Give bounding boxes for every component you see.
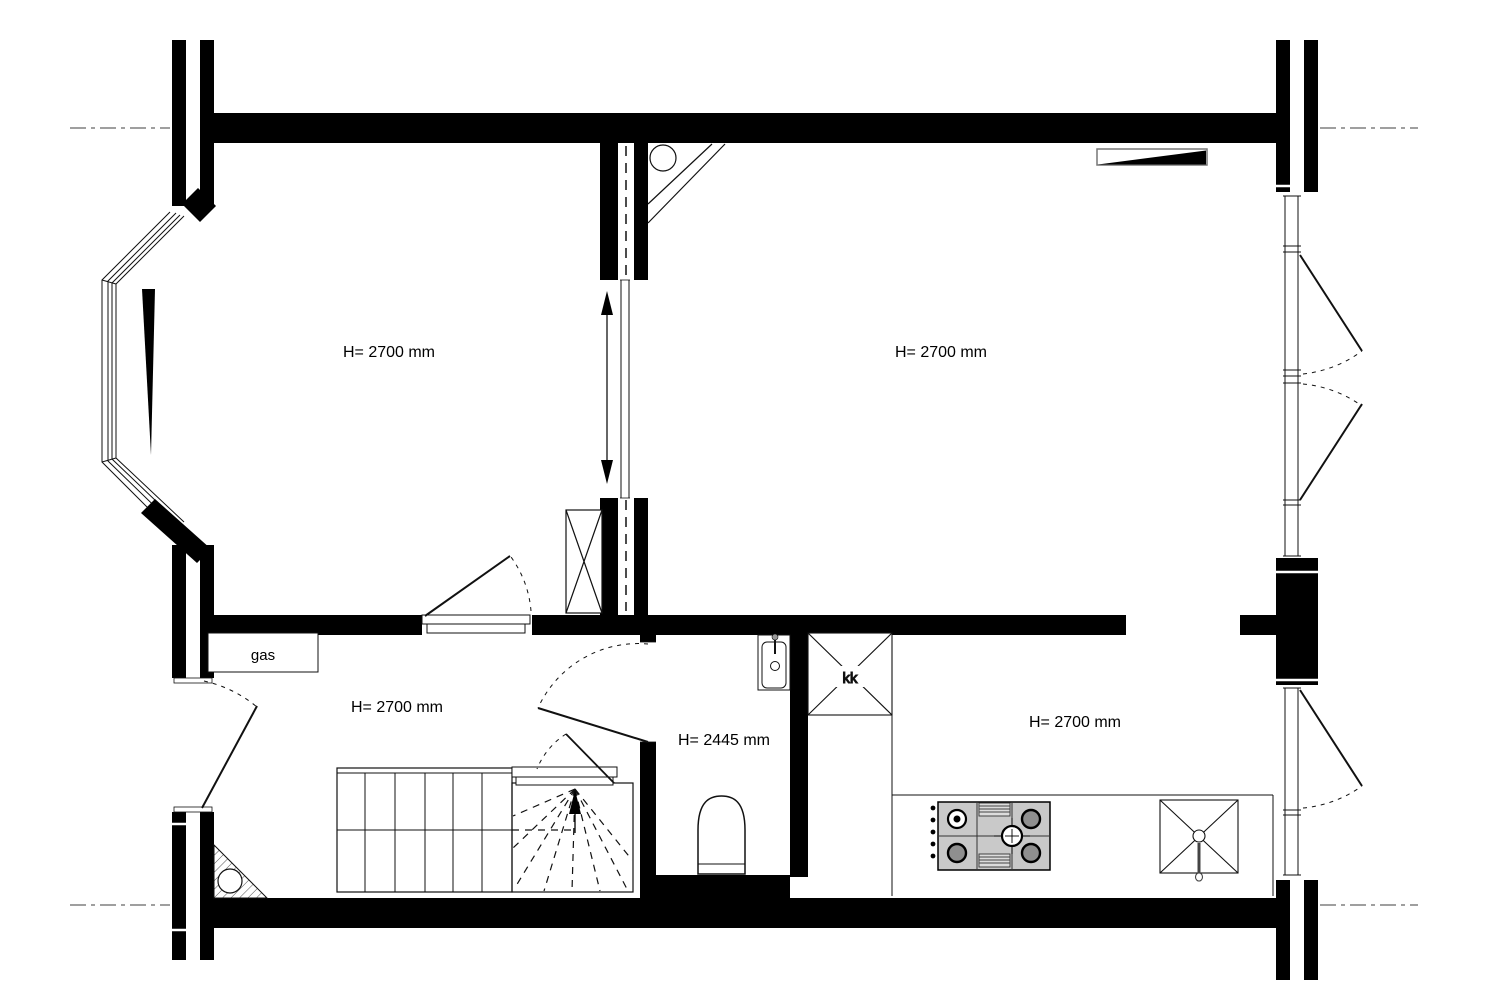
duct-circle bbox=[650, 145, 676, 171]
toilet-door-swing-arc bbox=[538, 644, 648, 708]
hob-knobs bbox=[931, 806, 936, 859]
party-wall-left-top-inner bbox=[200, 40, 214, 206]
fridge-label: kk bbox=[843, 670, 859, 687]
washbasin-tap-icon bbox=[772, 634, 778, 640]
interior-wall-stub-right bbox=[1240, 615, 1276, 635]
stair-winder bbox=[512, 783, 633, 892]
fridge-box: kk bbox=[808, 633, 892, 715]
room-labels: H= 2700 mm H= 2700 mm H= 2700 mm H= 2445… bbox=[343, 344, 1121, 749]
party-wall-right-bottom-inner bbox=[1276, 880, 1290, 980]
party-wall-left-bottom-outer bbox=[172, 812, 186, 960]
shaft-box bbox=[566, 510, 602, 613]
living-room-door-swing-arc bbox=[511, 557, 531, 611]
french-doors bbox=[1300, 255, 1362, 500]
toilet-wall-bottom bbox=[656, 875, 790, 898]
sliding-pocket-top-left-col bbox=[600, 143, 618, 280]
right-facade-mid-stub bbox=[1276, 558, 1318, 685]
wall-joints bbox=[172, 186, 1318, 930]
gas-meter-box: gas bbox=[208, 633, 318, 672]
kitchen-door-leaf bbox=[1300, 690, 1362, 786]
french-door-leaf-bottom bbox=[1300, 404, 1362, 500]
front-door-jamb-top bbox=[174, 678, 212, 683]
french-door-arc-bottom bbox=[1303, 384, 1362, 406]
french-door-leaf-top bbox=[1300, 255, 1362, 351]
washbasin-drain bbox=[771, 662, 780, 671]
washbasin bbox=[758, 634, 790, 690]
stairs bbox=[337, 734, 633, 892]
sliding-pocket-bottom-left-col bbox=[600, 498, 618, 615]
sliding-pocket-top-right-col bbox=[634, 143, 648, 280]
bottom-wall bbox=[214, 898, 1276, 928]
top-wall bbox=[214, 113, 1276, 143]
corner-diagonal-1 bbox=[648, 144, 712, 204]
radiator-bay-window bbox=[142, 289, 155, 455]
stair-door-threshold-inner bbox=[516, 777, 613, 785]
label-hallway: H= 2700 mm bbox=[351, 699, 443, 716]
front-door-leaf bbox=[202, 706, 257, 808]
floor-plan-canvas: gas bbox=[0, 0, 1500, 1000]
label-toilet: H= 2445 mm bbox=[678, 732, 770, 749]
kitchen-sink bbox=[1160, 800, 1238, 881]
party-wall-left-mid-outer bbox=[172, 545, 186, 678]
party-wall-left-top-outer bbox=[172, 40, 186, 206]
corner-diagonal-2 bbox=[648, 144, 725, 223]
bay-window bbox=[102, 212, 184, 530]
label-living-room-front: H= 2700 mm bbox=[343, 344, 435, 361]
living-room-door-leaf bbox=[425, 556, 510, 616]
gas-meter-label: gas bbox=[251, 647, 275, 664]
pipe-circle bbox=[218, 869, 242, 893]
meter-corner bbox=[214, 845, 267, 898]
party-wall-right-top-outer bbox=[1304, 40, 1318, 192]
interior-wall-main bbox=[532, 615, 1126, 635]
front-door-jamb-bottom bbox=[174, 807, 212, 812]
toilet-door-leaf bbox=[538, 708, 648, 742]
toilet-wall-left bbox=[640, 742, 656, 898]
door-threshold-outer bbox=[422, 615, 530, 624]
hob-burner-tr bbox=[1022, 810, 1040, 828]
front-door-swing-arc bbox=[204, 681, 257, 707]
door-threshold-inner bbox=[427, 624, 525, 633]
toilet-room bbox=[538, 634, 790, 874]
party-wall-right-top-inner bbox=[1276, 40, 1290, 192]
living-room-door bbox=[422, 556, 531, 633]
sliding-pocket-bottom-right-col bbox=[634, 498, 648, 615]
interior-wall-left bbox=[214, 615, 422, 635]
french-door-arc-top bbox=[1303, 351, 1362, 374]
gas-hob bbox=[931, 802, 1050, 870]
sink-drain bbox=[1193, 830, 1205, 842]
label-kitchen: H= 2700 mm bbox=[1029, 714, 1121, 731]
party-wall-right-bottom-outer bbox=[1304, 880, 1318, 980]
toilet-wall-left-top bbox=[640, 635, 656, 642]
stair-door-threshold-outer bbox=[512, 767, 617, 777]
front-door bbox=[174, 678, 257, 812]
radiators bbox=[142, 149, 1207, 455]
stair-up-arrow bbox=[569, 790, 581, 833]
sliding-door-arrow bbox=[601, 291, 613, 484]
toilet-bowl bbox=[698, 796, 745, 874]
toilet-wall-right bbox=[790, 633, 808, 877]
centerlines bbox=[70, 128, 1418, 905]
floor-plan-drawing: gas bbox=[0, 0, 1500, 1000]
hob-burner-bl bbox=[948, 844, 966, 862]
kitchen-exterior-door bbox=[1300, 690, 1362, 808]
sliding-door bbox=[601, 144, 725, 611]
hob-burner-br bbox=[1022, 844, 1040, 862]
party-wall-left-bottom-inner bbox=[200, 812, 214, 960]
right-facade-windows bbox=[1283, 196, 1301, 875]
label-living-room-back: H= 2700 mm bbox=[895, 344, 987, 361]
stair-door-swing-arc bbox=[537, 734, 566, 769]
kitchen-door-swing-arc bbox=[1303, 786, 1362, 808]
